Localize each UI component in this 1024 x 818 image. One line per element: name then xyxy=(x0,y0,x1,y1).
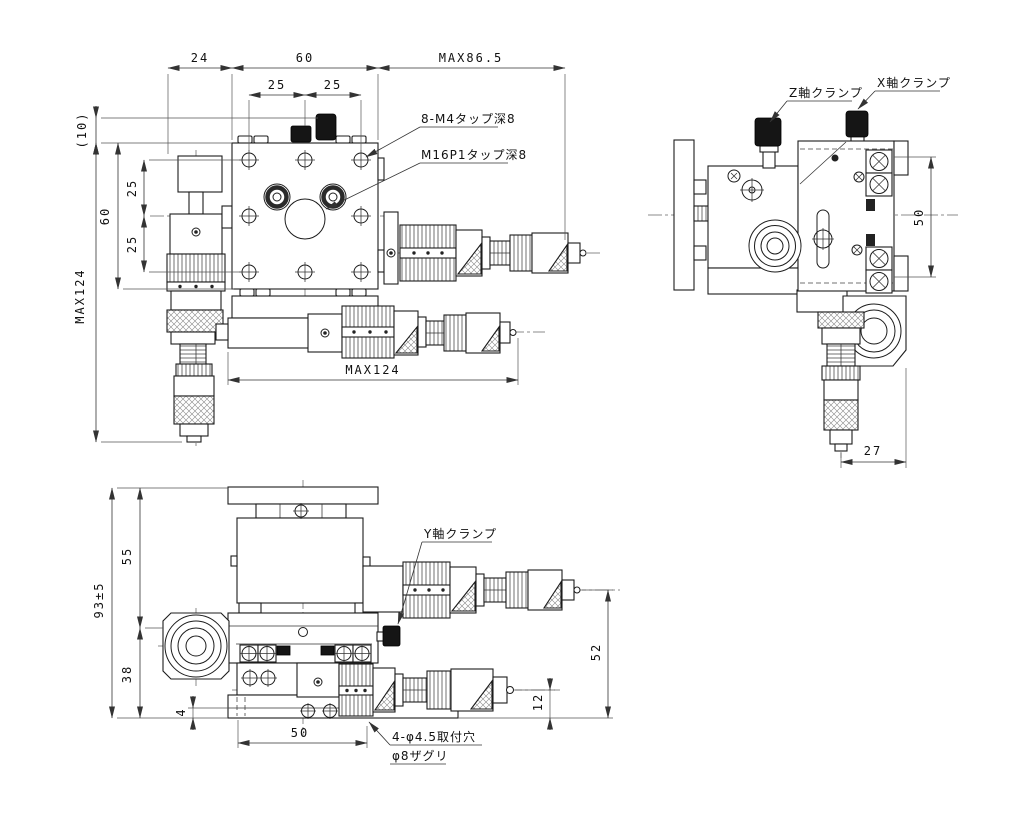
drawing-canvas: 24 60 MAX86.5 25 25 (10) MAX124 60 25 25… xyxy=(0,0,1024,818)
dim-27: 27 xyxy=(864,444,882,458)
dim-10: (10) xyxy=(75,112,89,149)
y-micrometer xyxy=(216,296,516,358)
dim-38: 38 xyxy=(120,665,134,683)
dim-60-left: 60 xyxy=(98,207,112,225)
dim-max124-bottom: MAX124 xyxy=(345,363,400,377)
view-side: 50 27 Z軸クランプ X軸クランプ xyxy=(648,76,958,468)
dim-93: 93±5 xyxy=(92,582,106,619)
dim-max86-5: MAX86.5 xyxy=(439,51,504,65)
dim-24: 24 xyxy=(191,51,209,65)
y-clamp-knob xyxy=(383,626,400,646)
z-micrometer-side xyxy=(818,312,864,451)
label-tap-m16: M16P1タップ深8 xyxy=(421,148,527,162)
label-tap-m4: 8-M4タップ深8 xyxy=(421,112,516,126)
view-front: 93±5 55 38 4 50 52 12 Y軸クランプ 4-φ4.5取付穴 φ… xyxy=(92,480,620,764)
dim-25-left-lower: 25 xyxy=(125,235,139,253)
view-plan: 24 60 MAX86.5 25 25 (10) MAX124 60 25 25… xyxy=(73,51,600,446)
x-clamp-knob xyxy=(846,111,868,137)
y-micrometer-front xyxy=(363,562,580,618)
dim-25-left-upper: 25 xyxy=(125,179,139,197)
label-y-clamp: Y軸クランプ xyxy=(423,527,497,541)
dim-max124-left: MAX124 xyxy=(73,268,87,323)
dim-25-top-right: 25 xyxy=(324,78,342,92)
side-body xyxy=(674,111,908,366)
cad-sheet: 24 60 MAX86.5 25 25 (10) MAX124 60 25 25… xyxy=(0,0,1024,818)
clamp-knob-large xyxy=(316,114,336,140)
label-mounting-holes: 4-φ4.5取付穴 xyxy=(392,729,476,744)
dim-55: 55 xyxy=(120,547,134,565)
label-x-clamp: X軸クランプ xyxy=(877,76,951,90)
dim-50-front: 50 xyxy=(291,726,309,740)
label-counterbore: φ8ザグリ xyxy=(392,749,449,763)
mounting-plate-edge xyxy=(674,140,694,290)
dim-12: 12 xyxy=(531,693,545,711)
dim-52: 52 xyxy=(589,643,603,661)
dim-50-side: 50 xyxy=(912,208,926,226)
z-clamp-knob xyxy=(755,118,781,146)
x-micrometer xyxy=(384,212,586,284)
label-z-clamp: Z軸クランプ xyxy=(789,86,863,100)
dim-4: 4 xyxy=(174,707,188,716)
z-micrometer xyxy=(167,156,232,442)
top-table xyxy=(228,487,378,504)
dim-25-top-left: 25 xyxy=(268,78,286,92)
dim-60-top: 60 xyxy=(296,51,314,65)
y-micrometer-head-end xyxy=(749,220,801,272)
clamp-knob-small xyxy=(291,126,311,142)
z-micrometer-head-end xyxy=(165,615,227,677)
